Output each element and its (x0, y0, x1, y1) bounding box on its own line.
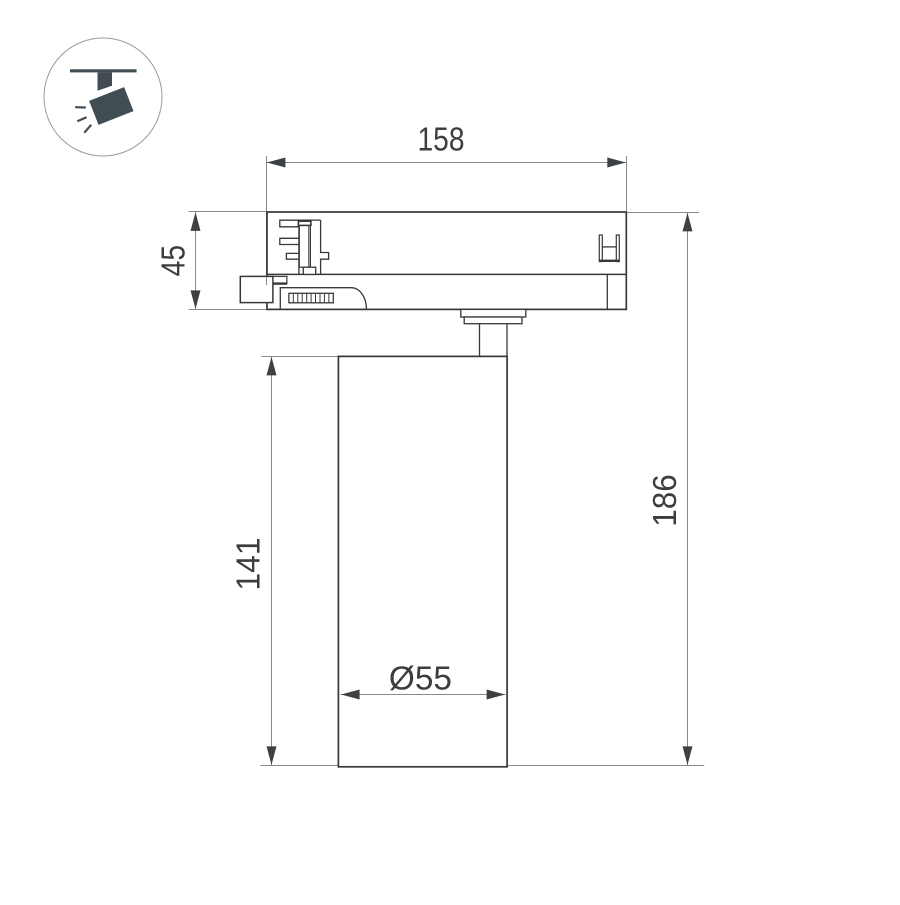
svg-text:141: 141 (230, 538, 267, 591)
svg-text:158: 158 (418, 121, 465, 158)
svg-text:186: 186 (646, 474, 683, 527)
svg-text:Ø55: Ø55 (389, 659, 452, 696)
svg-text:45: 45 (155, 245, 192, 277)
